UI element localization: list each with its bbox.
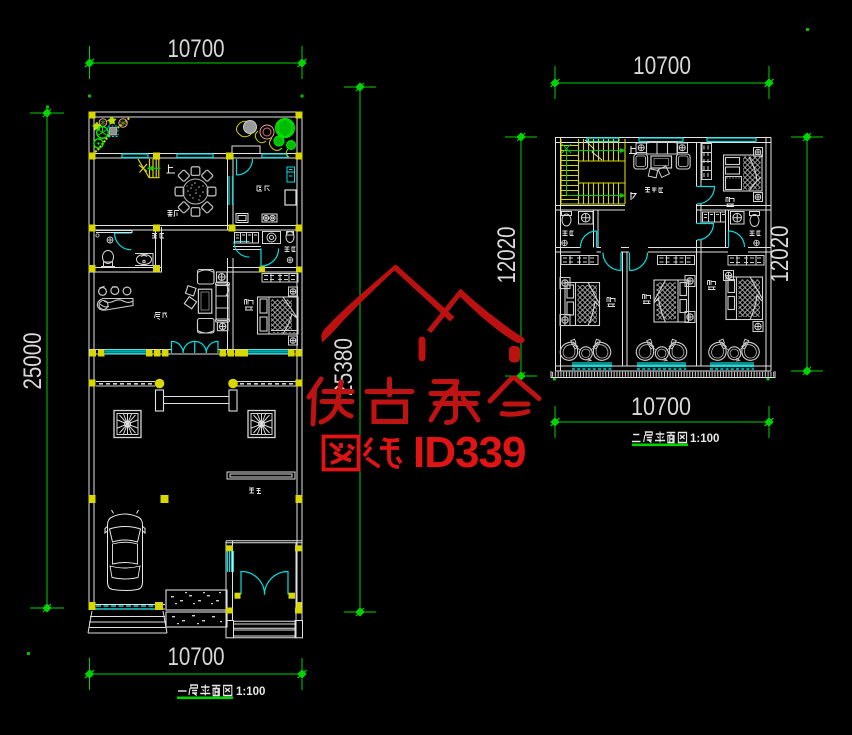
svg-text:10700: 10700 — [168, 35, 225, 63]
svg-text:10700: 10700 — [633, 52, 691, 80]
svg-text:12020: 12020 — [493, 227, 521, 284]
svg-text:ID339: ID339 — [413, 428, 525, 477]
svg-text:1:100: 1:100 — [690, 433, 719, 445]
svg-text:1:100: 1:100 — [236, 686, 265, 698]
svg-text:25380: 25380 — [330, 338, 358, 396]
svg-text:10700: 10700 — [168, 643, 225, 671]
svg-text:12020: 12020 — [766, 226, 794, 283]
svg-text:10700: 10700 — [631, 393, 691, 421]
svg-text:25000: 25000 — [19, 333, 47, 390]
